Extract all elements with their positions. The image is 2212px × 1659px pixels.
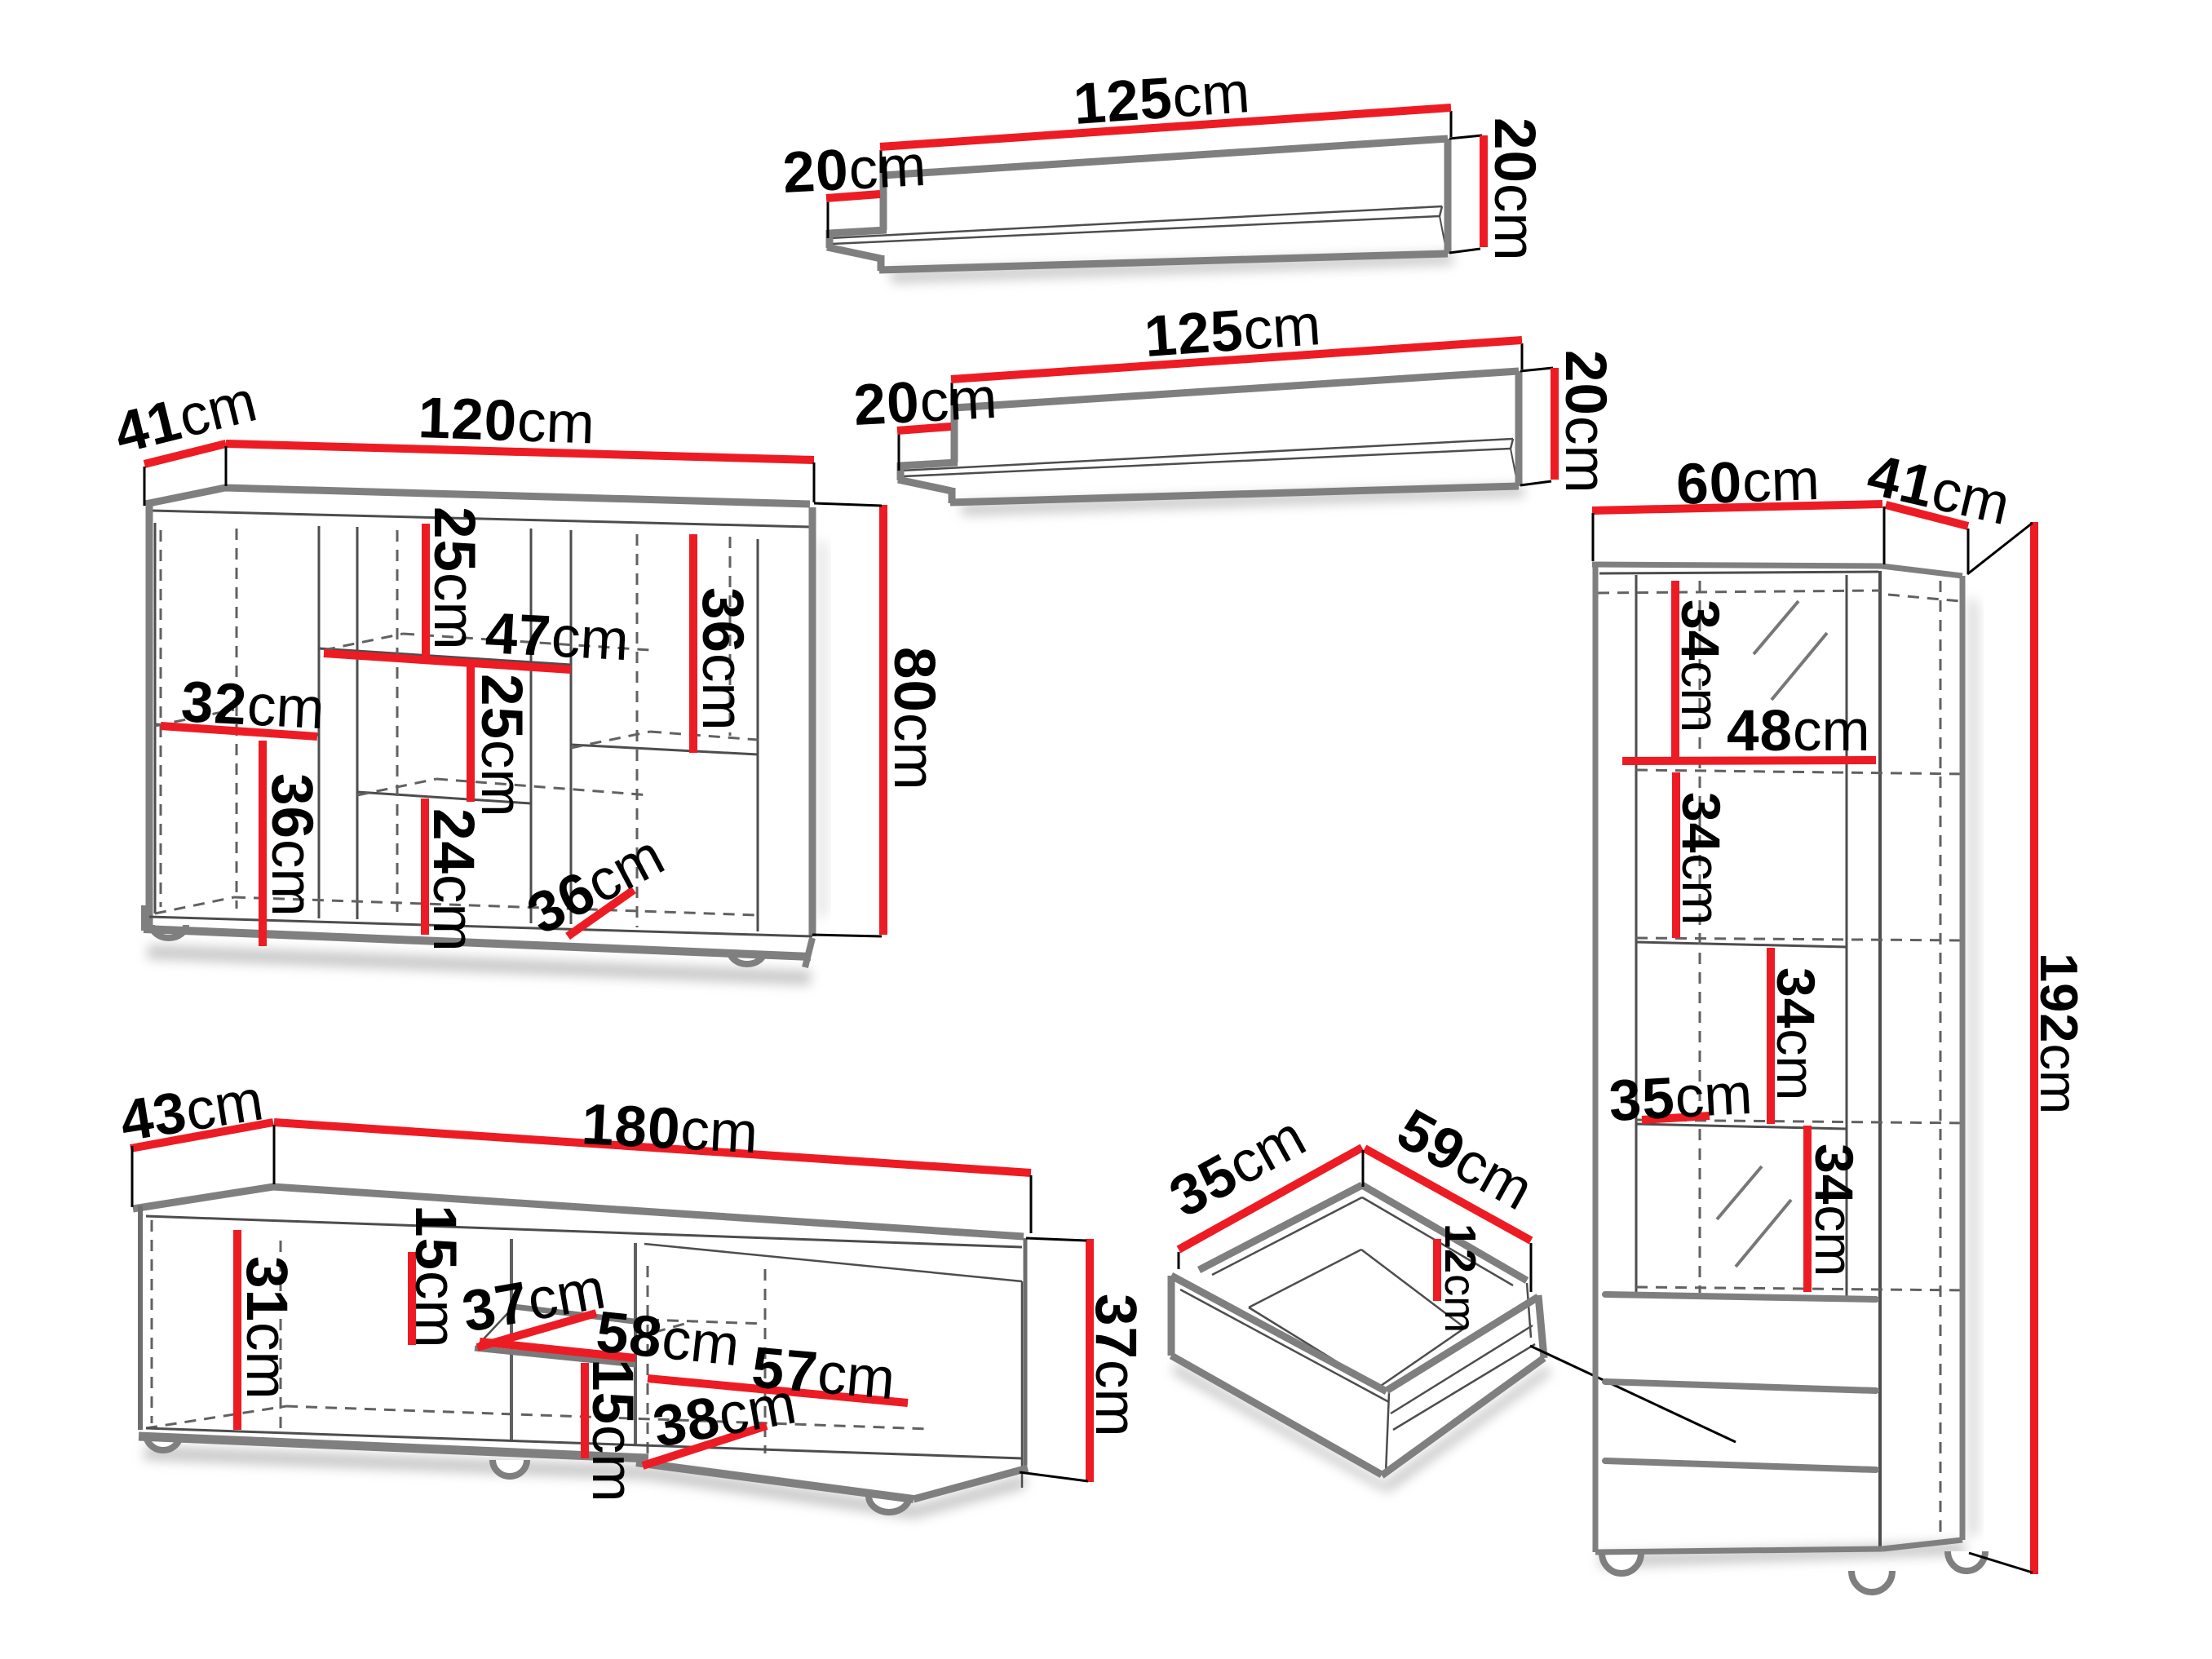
svg-text:15cm: 15cm <box>403 1205 467 1348</box>
svg-text:15cm: 15cm <box>580 1359 644 1502</box>
svg-text:36cm: 36cm <box>259 773 324 917</box>
svg-text:34cm: 34cm <box>1671 792 1732 925</box>
svg-text:48cm: 48cm <box>1727 699 1870 763</box>
svg-text:24cm: 24cm <box>421 808 485 952</box>
svg-text:37cm: 37cm <box>1083 1294 1148 1437</box>
svg-text:34cm: 34cm <box>1670 599 1731 732</box>
svg-text:36cm: 36cm <box>690 587 754 731</box>
svg-text:180cm: 180cm <box>580 1092 759 1166</box>
svg-text:32cm: 32cm <box>179 670 326 741</box>
svg-text:192cm: 192cm <box>2029 953 2089 1114</box>
svg-text:120cm: 120cm <box>417 386 595 456</box>
svg-text:60cm: 60cm <box>1675 448 1820 517</box>
svg-text:35cm: 35cm <box>1608 1062 1754 1134</box>
svg-text:34cm: 34cm <box>1766 967 1826 1100</box>
svg-text:34cm: 34cm <box>1804 1144 1865 1276</box>
svg-text:25cm: 25cm <box>422 507 486 650</box>
svg-text:25cm: 25cm <box>469 674 533 817</box>
svg-text:31cm: 31cm <box>234 1256 299 1400</box>
svg-text:80cm: 80cm <box>882 647 946 790</box>
svg-text:12cm: 12cm <box>1436 1223 1484 1333</box>
svg-text:47cm: 47cm <box>484 601 630 673</box>
